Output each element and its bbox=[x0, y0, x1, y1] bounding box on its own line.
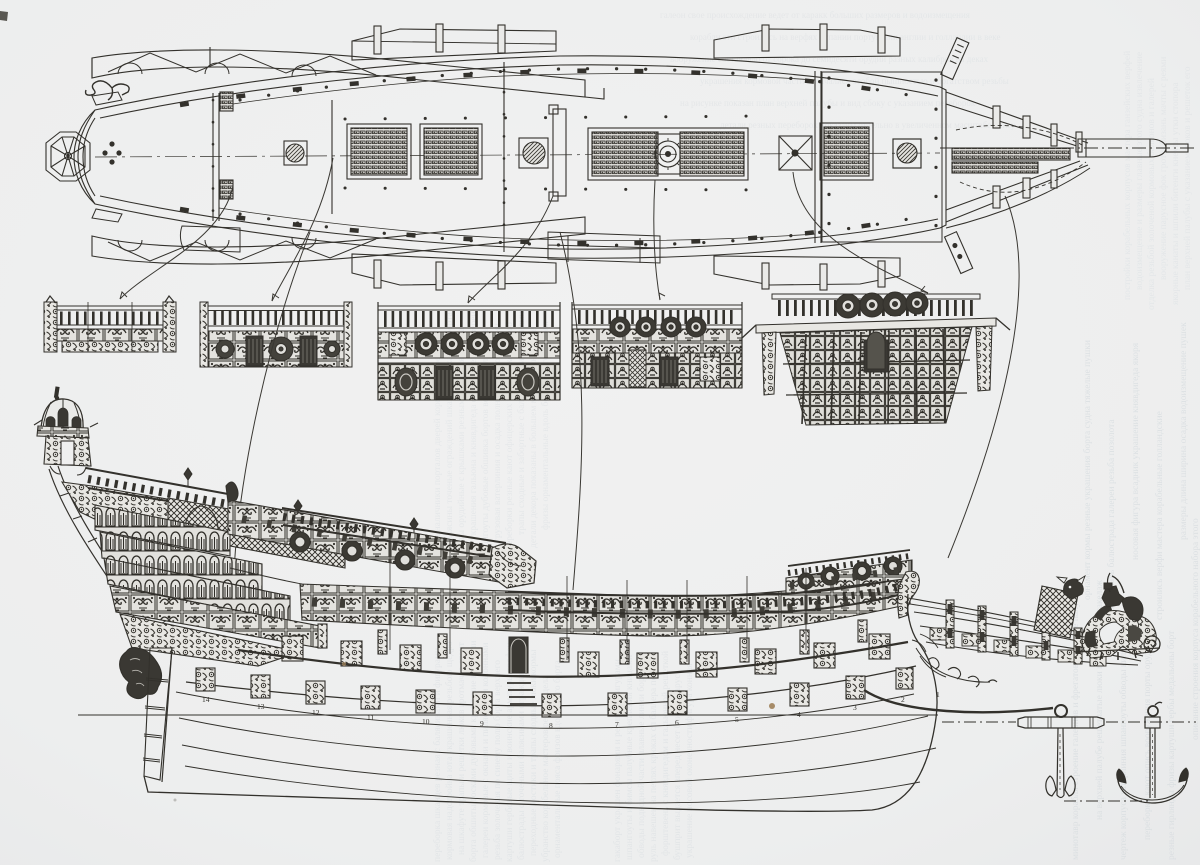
svg-text:балюстрады с точеными балясина: балюстрады с точеными балясинами огражде… bbox=[516, 642, 527, 860]
svg-text:галеон свое происхождение веде: галеон свое происхождение ведет от карак… bbox=[660, 10, 970, 20]
svg-text:14: 14 bbox=[202, 695, 210, 704]
svg-text:орнаментальные пояса фризов вд: орнаментальные пояса фризов вдоль всего … bbox=[552, 660, 563, 858]
svg-text:якорные канаты и шпили битенги: якорные канаты и шпили битенги кнехты ут… bbox=[1170, 82, 1181, 305]
svg-text:описание строения корпуса кора: описание строения корпуса корабельного н… bbox=[1190, 518, 1200, 740]
svg-text:шпангоуты и бимсы палубные кре: шпангоуты и бимсы палубные крепления кни… bbox=[624, 655, 635, 860]
svg-text:12: 12 bbox=[312, 708, 320, 717]
svg-text:строились верфи мастера корабе: строились верфи мастера корабельные голл… bbox=[1154, 411, 1165, 620]
svg-text:постройки корабельных корпусов: постройки корабельных корпусов мастера г… bbox=[1122, 51, 1133, 300]
svg-text:носовая фигура всадник украшен: носовая фигура всадник украшение княвдиг… bbox=[1130, 342, 1141, 560]
svg-text:отделка резьбой золоченой корм: отделка резьбой золоченой кормовых балко… bbox=[1146, 78, 1157, 310]
svg-text:шпангоуты дубовые обшивка борт: шпангоуты дубовые обшивка бортов вельсы … bbox=[480, 327, 491, 558]
svg-text:корабли эти строились на верфя: корабли эти строились на верфях испании … bbox=[690, 32, 1000, 42]
svg-text:орнамент кормы резные украшени: орнамент кормы резные украшения борта су… bbox=[1082, 340, 1093, 600]
svg-text:11: 11 bbox=[367, 713, 374, 722]
svg-text:3: 3 bbox=[853, 703, 857, 712]
svg-text:5: 5 bbox=[735, 715, 739, 724]
svg-text:гакаборт украшен фонарями и ре: гакаборт украшен фонарями и резными фигу… bbox=[612, 659, 623, 862]
svg-text:6: 6 bbox=[675, 718, 679, 727]
svg-text:резьба золоченая по синему пол: резьба золоченая по синему полю борта ве… bbox=[492, 660, 503, 860]
svg-text:размеры длина ширина осадка во: размеры длина ширина осадка водоизмещени… bbox=[1179, 322, 1189, 540]
svg-text:переборка шканцев резная с бал: переборка шканцев резная с балясинами и … bbox=[432, 648, 443, 862]
svg-text:водоизмещение и размеры главны: водоизмещение и размеры главные этого су… bbox=[1135, 52, 1145, 290]
svg-text:порты орудийные с крышками рез: порты орудийные с крышками резными на пе… bbox=[456, 327, 467, 555]
svg-text:резные гирлянды фризы картуши: резные гирлянды фризы картуши гербы меда… bbox=[1166, 630, 1177, 860]
svg-text:план верхней палубы с указание: план верхней палубы с указанием люков и … bbox=[1182, 66, 1193, 290]
svg-text:переборки кают опись вооружени: переборки кают опись вооружения порты ор… bbox=[1142, 625, 1153, 840]
svg-text:обводы подводной части плавные: обводы подводной части плавные линии бор… bbox=[636, 668, 647, 858]
svg-text:переходные мостики и трапы схо: переходные мостики и трапы сходные люки … bbox=[529, 649, 539, 856]
svg-text:руль навешен на петлях крюках: руль навешен на петлях крюках сп баллера… bbox=[648, 666, 659, 862]
svg-text:вооружение парусное фок грот и: вооружение парусное фок грот и бизань ма… bbox=[1158, 57, 1169, 280]
svg-text:детали декора показаны в больш: детали декора показаны в большем масштаб… bbox=[528, 328, 539, 548]
